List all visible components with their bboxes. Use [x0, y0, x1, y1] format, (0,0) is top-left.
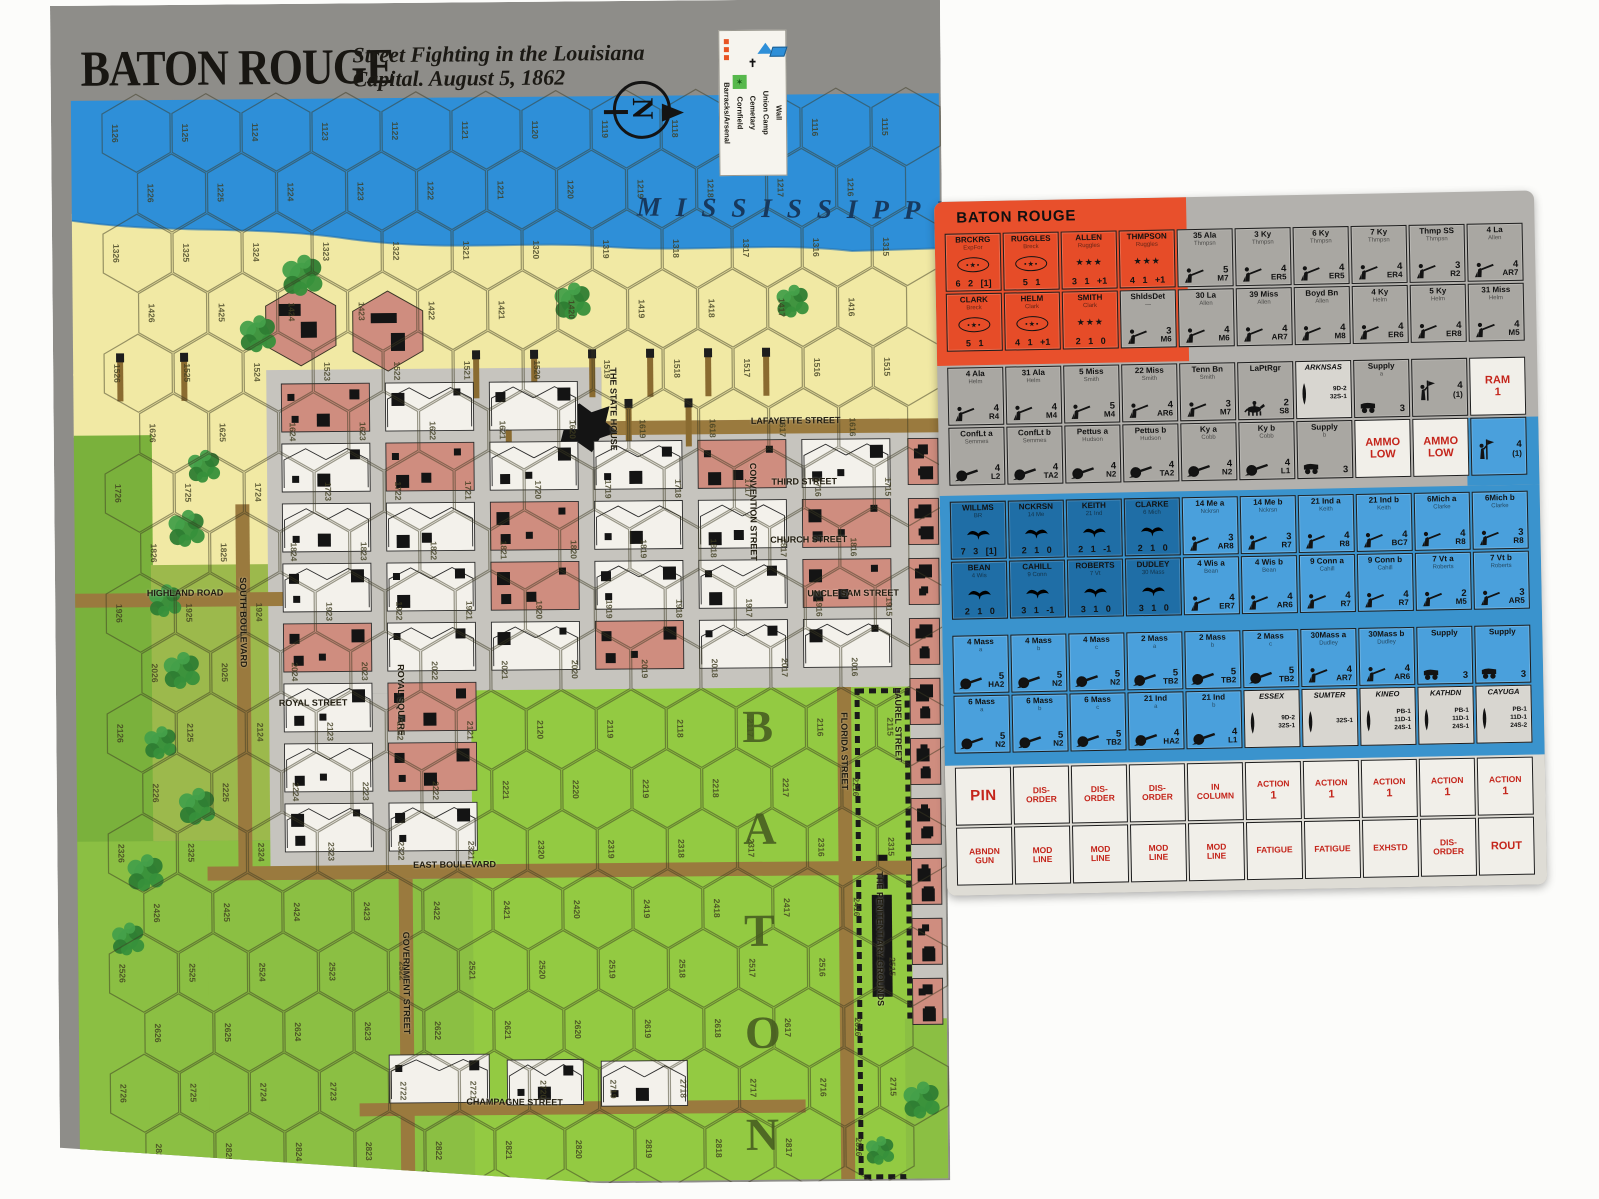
hex-number: 1623 [358, 422, 368, 441]
counter-ammo-low[interactable]: AMMOLOW [1354, 419, 1411, 478]
counter-kineo[interactable]: KINEO PB-111D-124S-1 [1359, 687, 1416, 746]
hex-number: 2116 [815, 718, 825, 737]
eagle-icon [966, 585, 992, 600]
hex-number: 2621 [503, 1021, 513, 1040]
legend-item-cornfield: ✶ Cornfield [732, 31, 746, 175]
hex-number: 1823 [359, 542, 369, 561]
counter-stats: 6 2 [1] [947, 278, 999, 289]
counter-5-ky[interactable]: 5 Ky Helm 4 ER8 [1410, 284, 1467, 343]
counter-conflt-a[interactable]: ConfLt a Semmes 4 L2 [948, 427, 1005, 486]
counter-mod-line[interactable]: MODLINE [1014, 826, 1071, 885]
marker-text: ACTION1 [1247, 764, 1300, 817]
counter-code: HA2 [1163, 737, 1179, 745]
hex-number: 1524 [252, 363, 262, 382]
hex-number: 1416 [847, 298, 857, 317]
counter-thmp-ss[interactable]: Thmp SS Thmpsn 3 R2 [1409, 224, 1466, 283]
hex-number: 2421 [502, 901, 512, 920]
counter-4-ky[interactable]: 4 Ky Helm 4 ER6 [1352, 285, 1409, 344]
hex-number: 2526 [117, 964, 127, 983]
map-legend: Barracks/Arsenal ✶ Cornfield ✝ Cemetary … [718, 30, 787, 177]
hex-number: 2416 [852, 897, 862, 916]
counter-9-conn-b[interactable]: 9 Conn b Cahill 4 R7 [1357, 553, 1414, 612]
counter-dis-order[interactable]: DIS-ORDER [1129, 763, 1186, 822]
hex-number: 1620 [568, 420, 578, 439]
infantry-icon [1472, 321, 1496, 337]
legend-item-wall: Wall [772, 31, 786, 175]
counter-exhstd[interactable]: EXHSTD [1362, 819, 1419, 878]
hex-number: 2016 [850, 657, 860, 676]
counter-4-ala[interactable]: 4 Ala Helm 4 R4 [947, 367, 1004, 426]
map-subtitle-line1: Street Fighting in the Louisiana [352, 41, 644, 68]
marker-text: MODLINE [1016, 829, 1069, 882]
counter-code: 24S-1 [1452, 722, 1469, 730]
marker-text: PIN [957, 770, 1010, 823]
hex-number: 1916 [814, 598, 824, 617]
counter-action-1[interactable]: ACTION1 [1245, 761, 1302, 820]
hex-number: 1521 [462, 361, 472, 380]
street-label-east-boulevard: EAST BOULEVARD [413, 859, 496, 870]
infantry-icon [1420, 590, 1444, 606]
counter-2-mass[interactable]: 2 Mass c 5 TB2 [1242, 629, 1299, 688]
counter-helm[interactable]: HELM Clark •★• 4 1 +1 [1004, 292, 1061, 351]
hex-number: 2121 [465, 721, 475, 740]
artillery-icon [1127, 462, 1153, 478]
counter-21-ind-a[interactable]: 21 Ind a Keith 4 R8 [1298, 494, 1355, 553]
counter-2-mass[interactable]: 2 Mass a 5 TB2 [1126, 631, 1183, 690]
cornfield-icon: ✶ [732, 75, 746, 89]
marker-text: ROUT [1480, 820, 1533, 873]
counter-roberts[interactable]: ROBERTS 7 Vt 3 1 0 [1067, 558, 1124, 617]
river-label: MISSISSIPPI [637, 191, 961, 226]
hex-number: 1522 [392, 361, 402, 380]
hex-number: 2422 [432, 901, 442, 920]
marker-text: ABNDNGUN [958, 830, 1011, 883]
artillery-icon [1011, 464, 1037, 480]
street-label-highland-road: HIGHLAND ROAD [147, 588, 224, 599]
hex-number: 2223 [361, 782, 371, 801]
infantry-icon [1363, 665, 1387, 681]
counter-conflt-b[interactable]: ConfLt b Semmes 4 TA2 [1006, 426, 1063, 485]
counter-code: AR8 [1218, 542, 1234, 550]
hex-number: 2324 [256, 843, 266, 862]
legend-label: Wall [775, 105, 784, 120]
counter-7-ky[interactable]: 7 Ky Thmpsn 4 ER4 [1351, 225, 1408, 284]
infantry-icon [1010, 404, 1034, 420]
counter-blank[interactable]: 4 (1) [1411, 358, 1468, 417]
counter-stats: 7 3 [1] [953, 546, 1005, 557]
artillery-icon [1189, 669, 1215, 685]
hex-number: 2619 [643, 1019, 653, 1038]
hex-number: 2820 [574, 1140, 584, 1159]
hex-number: 2325 [186, 843, 196, 862]
counter-smith[interactable]: SMITH Clark ★★★ 2 1 0 [1062, 290, 1119, 349]
flag-icon [1416, 379, 1436, 401]
hex-number: 2617 [783, 1018, 793, 1037]
hex-number: 2519 [607, 960, 617, 979]
park-letter-t: T [744, 904, 775, 957]
counter-rout[interactable]: ROUT [1478, 817, 1535, 876]
hex-number: 1621 [498, 421, 508, 440]
counter-4-la[interactable]: 4 La Allen 4 AR7 [1467, 223, 1524, 282]
street-label-government-street: GOVERNMENT STREET [401, 932, 412, 1035]
counter-6-mass[interactable]: 6 Mass a 5 N2 [953, 695, 1010, 754]
counter-action-1[interactable]: ACTION1 [1419, 758, 1476, 817]
counter-laptrgr[interactable]: LaPtRgr 2 S8 [1237, 361, 1294, 420]
hex-number: 1819 [639, 539, 649, 558]
park-letter-n: N [746, 1108, 780, 1161]
counter-brckrg[interactable]: BRCKRG ExpFor •★• 6 2 [1] [945, 233, 1002, 292]
flag-icon [1475, 438, 1495, 460]
hex-number: 2326 [116, 844, 126, 863]
street-label-laurel-street: LAUREL STREET [893, 687, 904, 761]
artillery-icon [1243, 460, 1269, 476]
ship-icon [1480, 706, 1489, 730]
counter-4-mass[interactable]: 4 Mass b 5 N2 [1010, 634, 1067, 693]
counter-supply[interactable]: Supply 3 [1474, 625, 1531, 684]
counter-dudley[interactable]: DUDLEY 30 Mass 3 1 0 [1125, 557, 1182, 616]
hex-number: 1926 [114, 604, 124, 623]
street-label-uncle-sam-street: UNCLE SAM STREET [807, 588, 899, 599]
hex-number: 2315 [886, 837, 896, 856]
hex-number: 2025 [220, 663, 230, 682]
counter-in-column[interactable]: INCOLUMN [1187, 762, 1244, 821]
hex-number: 1321 [461, 241, 471, 260]
hex-number: 1917 [744, 598, 754, 617]
counter-6mich-b[interactable]: 6Mich b Clarke 3 R8 [1472, 491, 1529, 550]
hex-number: 1423 [357, 302, 367, 321]
counter-keith[interactable]: KEITH 21 Ind 2 1 -1 [1066, 498, 1123, 557]
hex-number: 2425 [222, 903, 232, 922]
hex-number: 1425 [217, 303, 227, 322]
hex-number: 2717 [748, 1078, 758, 1097]
counter-fatigue[interactable]: FATIGUE [1246, 821, 1303, 880]
hex-number: 1923 [324, 602, 334, 621]
wagon-icon [1479, 664, 1501, 679]
counter-stats: 2 1 0 [1127, 542, 1179, 553]
counter-cayuga[interactable]: CAYUGA PB-111D-124S-2 [1475, 685, 1532, 744]
counter-mod-line[interactable]: MODLINE [1130, 823, 1187, 882]
counter-abndn-gun[interactable]: ABNDNGUN [956, 827, 1013, 886]
counter-cahill[interactable]: CAHILL 9 Conn 3 1 -1 [1009, 560, 1066, 619]
counter-stats: 3 1 0 [1070, 603, 1122, 614]
hex-number: 2316 [816, 838, 826, 857]
eagle-icon [1139, 522, 1165, 537]
hex-number: 1319 [601, 240, 611, 259]
artillery-icon [953, 465, 979, 481]
hex-number: 1525 [182, 363, 192, 382]
counter-code: R7 [1398, 599, 1408, 607]
counter-3-ky[interactable]: 3 Ky Thmpsn 4 ER5 [1235, 227, 1292, 286]
hex-number: 2625 [223, 1023, 233, 1042]
artillery-icon [1073, 671, 1099, 687]
hex-number: 1123 [320, 122, 330, 141]
counter-30mass-b[interactable]: 30Mass b Dudley 4 AR6 [1358, 627, 1415, 686]
infantry-icon [1240, 326, 1264, 342]
hex-number: 1324 [251, 243, 261, 262]
counter-4-mass[interactable]: 4 Mass c 5 N2 [1068, 632, 1125, 691]
counter-9-conn-a[interactable]: 9 Conn a Cahill 4 R7 [1299, 554, 1356, 613]
counter-31-miss[interactable]: 31 Miss Helm 4 M5 [1468, 283, 1525, 342]
hex-number: 2119 [605, 720, 615, 739]
hex-number: 2226 [151, 784, 161, 803]
artillery-icon [1131, 670, 1157, 686]
counter-pettus-b[interactable]: Pettus b Hudson 4 TA2 [1122, 423, 1179, 482]
hex-number: 2023 [360, 662, 370, 681]
game-map-board: 1126112511241123112211211120111911181117… [50, 0, 950, 1188]
counter-code: N2 [1053, 740, 1063, 748]
hex-number: 1622 [428, 421, 438, 440]
counter-4-mass[interactable]: 4 Mass a 5 HA2 [952, 635, 1009, 694]
counter-code: N2 [1110, 679, 1120, 687]
infantry-icon [1360, 531, 1384, 547]
counter-30-la[interactable]: 30 La Allen 4 M6 [1178, 288, 1235, 347]
counter-thmpson[interactable]: THMPSON Ruggles ★★★ 4 1 +1 [1119, 229, 1176, 288]
counter-21-ind-b[interactable]: 21 Ind b Keith 4 BC7 [1356, 493, 1413, 552]
hex-number: 1115 [880, 118, 890, 136]
counter-ruggles[interactable]: RUGGLES Breck •★• 5 1 [1003, 232, 1060, 291]
counter-dis-order[interactable]: DIS-ORDER [1071, 764, 1128, 823]
hex-number: 2623 [363, 1022, 373, 1041]
counter-code: L1 [1281, 467, 1290, 475]
counter-6-mass[interactable]: 6 Mass b 5 N2 [1011, 694, 1068, 753]
counter-shldsdet[interactable]: ShldsDet — 3 M6 [1120, 289, 1177, 348]
marker-text: ACTION1 [1479, 760, 1532, 813]
counter-code: M8 [1334, 332, 1345, 340]
counter-supply[interactable]: Supply 3 [1416, 626, 1473, 685]
hex-number: 2826 [154, 1144, 164, 1163]
counter-action-1[interactable]: ACTION1 [1361, 759, 1418, 818]
hex-number: 2618 [713, 1019, 723, 1038]
counter-nckrsn[interactable]: NCKRSN 14 Me 2 1 0 [1008, 500, 1065, 559]
hex-number: 2819 [644, 1139, 654, 1158]
park-letter-o: O [745, 1006, 781, 1059]
counter-essex[interactable]: ESSEX 9D-232S-1 [1243, 689, 1300, 748]
infantry-icon [1188, 595, 1212, 611]
counter-bean[interactable]: BEAN 4 Wis 2 1 0 [951, 561, 1008, 620]
marker-text: FATIGUE [1248, 824, 1301, 877]
counter-code: R8 [1513, 537, 1523, 545]
counter-6mich-a[interactable]: 6Mich a Clarke 4 R8 [1414, 492, 1471, 551]
hex-number: 1420 [567, 300, 577, 319]
counter-2-mass[interactable]: 2 Mass b 5 TB2 [1184, 630, 1241, 689]
counter-21-ind[interactable]: 21 Ind a 4 HA2 [1127, 691, 1184, 750]
hex-number: 1517 [742, 358, 752, 377]
counter-mod-line[interactable]: MODLINE [1188, 822, 1245, 881]
artillery-icon [1015, 672, 1041, 688]
counter-pettus-a[interactable]: Pettus a Hudson 4 N2 [1064, 424, 1121, 483]
counter-code: M5 [1456, 598, 1467, 606]
hex-number: 1119 [600, 120, 610, 138]
marker-text: EXHSTD [1364, 822, 1417, 875]
hex-number: 2321 [466, 841, 476, 860]
hex-number: 1723 [323, 482, 333, 501]
counter-code: L1 [1228, 736, 1237, 744]
counter-4-wis-a[interactable]: 4 Wis a Bean 4 ER7 [1183, 556, 1240, 615]
oval-stars-icon: •★• [1016, 316, 1048, 332]
counter-ammo-low[interactable]: AMMOLOW [1412, 418, 1469, 477]
counter-ky-a[interactable]: Ky a Cobb 4 N2 [1180, 422, 1237, 481]
infantry-icon [1297, 265, 1321, 281]
counter-action-1[interactable]: ACTION1 [1303, 760, 1360, 819]
hex-number: 2221 [501, 781, 511, 800]
hex-number: 2426 [152, 904, 162, 923]
counter-39-miss[interactable]: 39 Miss Allen 4 AR7 [1236, 287, 1293, 346]
counter-code: AR6 [1277, 601, 1293, 609]
hex-number: 1224 [286, 182, 296, 201]
hex-number: 2423 [362, 902, 372, 921]
wagon-icon [1301, 460, 1323, 475]
hex-number: 1924 [254, 603, 264, 622]
counter-code: M7 [1220, 408, 1231, 416]
counter-30mass-a[interactable]: 30Mass a Dudley 4 AR7 [1300, 628, 1357, 687]
counter-code: AR6 [1157, 409, 1173, 417]
street-label-church-street: CHURCH STREET [770, 534, 847, 545]
counter-22-miss[interactable]: 22 Miss Smith 4 AR6 [1121, 363, 1178, 422]
map-title: BATON ROUGE [80, 37, 394, 98]
hex-number: 2523 [327, 962, 337, 981]
counter-4-wis-b[interactable]: 4 Wis b Bean 4 AR6 [1241, 555, 1298, 614]
hex-number: 1122 [390, 122, 400, 141]
counter-clarke[interactable]: CLARKE 6 Mich 2 1 0 [1124, 497, 1181, 556]
hex-number: 2622 [433, 1021, 443, 1040]
counter-strength: 3 [1521, 669, 1526, 679]
counter-code: 32S-1 [1336, 717, 1353, 725]
counter-35-ala[interactable]: 35 Ala Thmpsn 5 M7 [1177, 228, 1234, 287]
hex-number: 1323 [321, 242, 331, 261]
counter-7-vt-a[interactable]: 7 Vt a Roberts 2 M5 [1415, 552, 1472, 611]
hex-number: 1126 [110, 124, 120, 143]
counter-code: AR7 [1272, 333, 1288, 341]
infantry-icon [1414, 322, 1438, 338]
counter-action-1[interactable]: ACTION1 [1477, 757, 1534, 816]
counter-arknsas[interactable]: ARKNSAS 9D-232S-1 [1295, 360, 1352, 419]
hex-number: 2026 [150, 664, 160, 683]
infantry-icon [1418, 530, 1442, 546]
counter-14-me-a[interactable]: 14 Me a Nckrsn 3 AR8 [1182, 496, 1239, 555]
hex-number: 2616 [853, 1017, 863, 1036]
counter-sumter[interactable]: SUMTER 32S-1 [1301, 688, 1358, 747]
counter-stats: 5 1 [1005, 277, 1057, 288]
hex-number: 1718 [673, 479, 683, 498]
counter-supply[interactable]: Supply b 3 [1296, 420, 1353, 479]
hex-number: 2420 [572, 900, 582, 919]
counter-mod-line[interactable]: MODLINE [1072, 824, 1129, 883]
hex-number: 2323 [326, 842, 336, 861]
hex-number: 1915 [884, 597, 894, 616]
ship-icon [1306, 709, 1315, 733]
counter-ram-1[interactable]: RAM1 [1469, 357, 1526, 416]
counter-code: ER6 [1388, 331, 1404, 339]
hex-number: 1326 [111, 244, 121, 263]
counter-blank[interactable]: 4 (1) [1470, 417, 1527, 476]
hex-number: 1722 [393, 481, 403, 500]
counter-ky-b[interactable]: Ky b Cobb 4 L1 [1238, 421, 1295, 480]
hex-number: 1824 [289, 542, 299, 561]
infantry-icon [1246, 594, 1270, 610]
hex-number: 1120 [530, 121, 540, 140]
marker-text: ACTION1 [1363, 762, 1416, 815]
hex-number: 2724 [258, 1083, 268, 1102]
counter-dis-order[interactable]: DIS-ORDER [1420, 818, 1477, 877]
counter-code: AR7 [1502, 269, 1518, 277]
counter-code: M6 [1218, 334, 1229, 342]
legend-label: Barracks/Arsenal [722, 82, 732, 144]
marker-text: DIS-ORDER [1131, 766, 1184, 819]
counter-willms[interactable]: WILLMS BR 7 3 [1] [950, 501, 1007, 560]
ship-icon [1300, 381, 1309, 405]
counter-dis-order[interactable]: DIS-ORDER [1013, 766, 1070, 825]
ship-icon [1422, 707, 1431, 731]
hex-number: 1618 [708, 419, 718, 438]
counter-6-mass[interactable]: 6 Mass c 5 TB2 [1069, 692, 1126, 751]
counter-31-ala[interactable]: 31 Ala Helm 4 M4 [1005, 366, 1062, 425]
counter-7-vt-b[interactable]: 7 Vt b Roberts 3 AR5 [1473, 551, 1530, 610]
hex-number: 2217 [781, 778, 791, 797]
counter-code: R4 [989, 413, 999, 421]
infantry-icon [1068, 403, 1092, 419]
counter-code: HA2 [988, 681, 1004, 689]
counter-code: N2 [1052, 680, 1062, 688]
counter-boyd-bn[interactable]: Boyd Bn Allen 4 M8 [1294, 286, 1351, 345]
infantry-icon [1124, 328, 1148, 344]
counter-21-ind[interactable]: 21 Ind b 4 L1 [1185, 690, 1242, 749]
hex-number: 1422 [427, 301, 437, 320]
hex-number: 1822 [429, 541, 439, 560]
counter-code: R8 [1339, 540, 1349, 548]
counter-5-miss[interactable]: 5 Miss Smith 5 M4 [1063, 364, 1120, 423]
counter-code: TA2 [1044, 472, 1059, 480]
counter-6-ky[interactable]: 6 Ky Thmpsn 4 ER5 [1293, 226, 1350, 285]
marker-text: AMMOLOW [1414, 421, 1467, 474]
counter-kathdn[interactable]: KATHDN PB-111D-124S-1 [1417, 686, 1474, 745]
hex-number: 1726 [113, 484, 123, 503]
hex-number: 2120 [535, 720, 545, 739]
counter-stats: 3 1 +1 [1063, 276, 1115, 287]
cemetery-icon: ✝ [748, 57, 757, 70]
marker-text: RAM1 [1471, 360, 1524, 413]
hex-number: 1921 [464, 601, 474, 620]
hex-number: 2515 [887, 957, 897, 976]
hex-number: 1624 [288, 422, 298, 441]
hex-number: 1523 [322, 362, 332, 381]
hex-number: 1225 [216, 183, 226, 202]
hex-number: 1320 [531, 240, 541, 259]
hex-number: 1520 [532, 360, 542, 379]
hex-number: 1226 [146, 184, 156, 203]
counter-14-me-b[interactable]: 14 Me b Nckrsn 3 R7 [1240, 495, 1297, 554]
infantry-icon [1305, 667, 1329, 683]
hex-number: 2719 [608, 1080, 618, 1099]
counter-code: R7 [1281, 541, 1291, 549]
cavalry-icon [1242, 400, 1268, 416]
counter-supply[interactable]: Supply a 3 [1353, 359, 1410, 418]
counter-code: (1) [1453, 391, 1463, 399]
counter-allen[interactable]: ALLEN Ruggles ★★★ 3 1 +1 [1061, 231, 1118, 290]
counter-clark[interactable]: CLARK Breck •★• 5 1 [946, 293, 1003, 352]
infantry-icon [1126, 402, 1150, 418]
hex-number: 1720 [533, 480, 543, 499]
counter-pin[interactable]: PIN [955, 767, 1012, 826]
counter-code: N2 [995, 741, 1005, 749]
counter-code: 32S-1 [1278, 722, 1295, 730]
hex-number: 1922 [394, 601, 404, 620]
artillery-icon [1247, 668, 1273, 684]
counter-strength: 3 [1343, 465, 1348, 475]
counter-fatigue[interactable]: FATIGUE [1304, 820, 1361, 879]
counter-tenn-bn[interactable]: Tenn Bn Smith 3 M7 [1179, 362, 1236, 421]
marker-text: DIS-ORDER [1073, 767, 1126, 820]
hex-number: 2822 [434, 1141, 444, 1160]
